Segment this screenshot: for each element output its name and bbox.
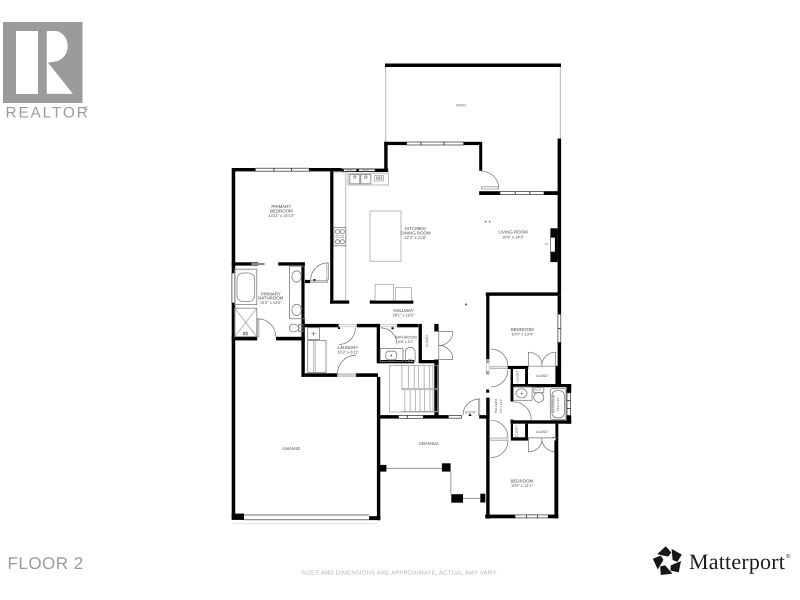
- svg-text:FLOOR 2: FLOOR 2: [8, 554, 84, 573]
- svg-text:5'8" x 5'1": 5'8" x 5'1": [398, 340, 414, 344]
- svg-text:CLOSET: CLOSET: [515, 370, 519, 382]
- svg-text:®: ®: [786, 553, 791, 560]
- svg-text:CLOSET: CLOSET: [536, 430, 549, 434]
- svg-text:16'9" x 14'3": 16'9" x 14'3": [502, 234, 525, 239]
- svg-text:PATIO: PATIO: [456, 104, 466, 108]
- svg-text:22'2" x 21'8": 22'2" x 21'8": [405, 235, 428, 240]
- svg-text:Matterport: Matterport: [689, 549, 785, 574]
- svg-text:HALLWAY: HALLWAY: [494, 398, 498, 414]
- svg-text:13'11" x 15'10": 13'11" x 15'10": [268, 213, 295, 218]
- svg-text:10'2" x 14'6": 10'2" x 14'6": [260, 300, 283, 305]
- svg-text:6'3" x 16'1": 6'3" x 16'1": [499, 398, 503, 413]
- svg-text:CLOSET: CLOSET: [425, 334, 429, 347]
- svg-text:7'10" x 9'1": 7'10" x 9'1": [556, 396, 560, 411]
- svg-text:CLOSET: CLOSET: [536, 374, 549, 378]
- svg-text:CLOSET: CLOSET: [515, 425, 519, 437]
- svg-text:VERANDA: VERANDA: [419, 441, 439, 446]
- svg-text:10'0" x 11'1": 10'0" x 11'1": [511, 483, 533, 488]
- svg-text:BATHROOM: BATHROOM: [552, 394, 556, 413]
- svg-text:10'0" x 13'4": 10'0" x 13'4": [511, 332, 534, 337]
- svg-text:SIZES AND DIMENSIONS ARE APPRO: SIZES AND DIMENSIONS ARE APPROXIMATE, AC…: [301, 570, 497, 577]
- svg-text:®: ®: [84, 105, 89, 112]
- svg-text:BATHROOM: BATHROOM: [395, 336, 417, 340]
- svg-text:ENTRY: ENTRY: [465, 411, 477, 415]
- svg-text:REALTOR: REALTOR: [6, 105, 90, 122]
- svg-text:16'3" x 6'11": 16'3" x 6'11": [337, 350, 359, 355]
- svg-text:29'1" x 16'5": 29'1" x 16'5": [393, 313, 416, 318]
- svg-text:GARAGE: GARAGE: [282, 446, 300, 451]
